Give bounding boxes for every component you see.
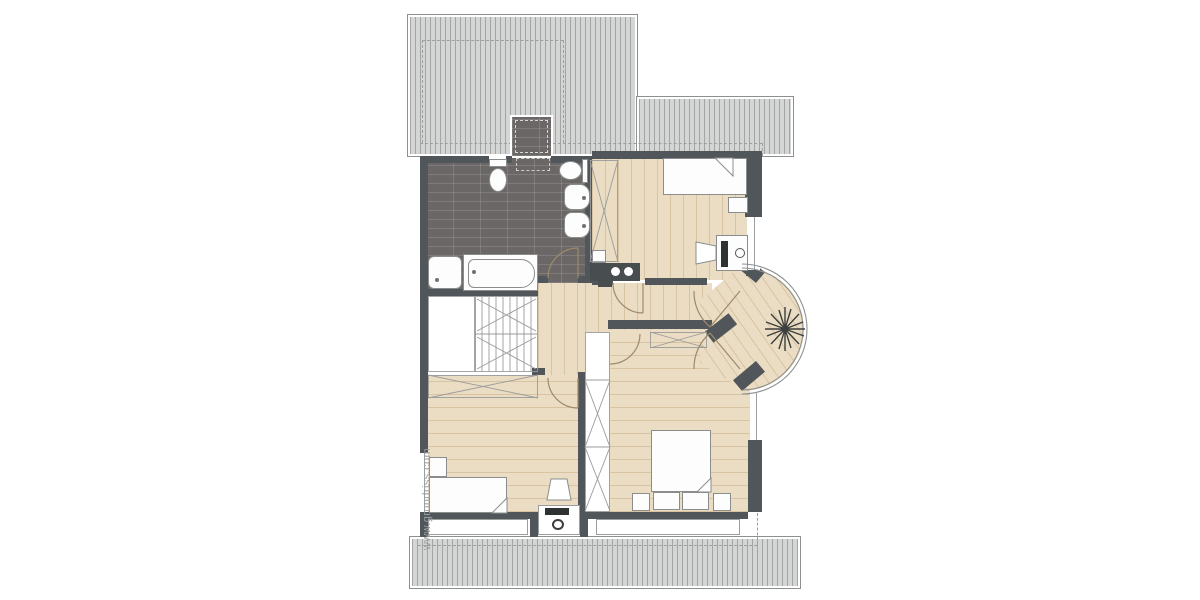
shower-dashed-zone (516, 158, 550, 171)
wall-outer-right-lower (748, 440, 762, 512)
mouse-icon (735, 248, 745, 258)
roof-dashed-line (418, 545, 757, 546)
roof-hatch-top-right (637, 97, 793, 156)
shower-drain-icon (435, 278, 439, 282)
wall-outer-bottom (588, 512, 748, 519)
desk-top-bedroom (716, 235, 748, 271)
bed-single-bottom-left (429, 477, 507, 513)
shower-tray (428, 256, 462, 289)
nightstand (713, 493, 731, 511)
counter-unit (590, 263, 640, 281)
sink (564, 184, 590, 210)
roof-dashed-line (553, 143, 762, 144)
bathtub-tap-icon (472, 270, 476, 274)
bathtub-inner (468, 259, 535, 288)
roof-dashed-line (422, 40, 423, 143)
counter-circle-icon (611, 267, 620, 276)
pc-monitor-icon (721, 241, 728, 267)
wall-bedroom-bottom (645, 278, 707, 285)
roof-dashed-line (563, 40, 564, 143)
knee-wall-right (596, 519, 740, 535)
toilet (489, 159, 507, 167)
wall-hall-room (608, 320, 712, 329)
roof-dashed-line (422, 40, 563, 41)
pillow (653, 492, 680, 510)
knee-wall-left (428, 519, 528, 535)
roof-dashed-line (757, 513, 758, 545)
bidet-bowl (559, 161, 582, 180)
wall-outer-bottom (420, 512, 532, 519)
pc-keyboard-icon (545, 508, 569, 515)
sink (564, 212, 590, 238)
counter-stub (598, 281, 612, 287)
bidet-tank (582, 159, 588, 183)
wall-closet-left (578, 372, 585, 512)
wall-outer-bottom (580, 512, 588, 537)
hallway-floor (538, 283, 585, 383)
sink-tap-icon (582, 224, 586, 228)
stool-icon (552, 519, 564, 530)
window-right-bottom (750, 393, 762, 440)
floor-plan-canvas: www.grundriss.com (0, 0, 1200, 600)
chimney-block (510, 115, 553, 158)
wall-bathroom-bottom (538, 276, 548, 283)
sink-tap-icon (582, 196, 586, 200)
stair-void (429, 297, 475, 372)
window-right-top (748, 217, 760, 270)
desk-niche (538, 505, 580, 535)
watermark-text: www.grundriss.com (421, 444, 435, 554)
stairs (475, 297, 538, 372)
roof-dashed-line (762, 143, 763, 156)
bed-double (651, 430, 711, 492)
bed-single-top (663, 158, 747, 195)
counter-circle-icon (624, 267, 633, 276)
closet-column (585, 333, 610, 512)
toilet-bowl (489, 168, 507, 192)
pillow (682, 492, 709, 510)
wall-outer-bottom (530, 512, 538, 537)
roof-dashed-line (420, 143, 512, 144)
nightstand (728, 197, 748, 213)
cabinet (592, 250, 606, 263)
wall-stub-stairs (532, 368, 545, 375)
nightstand (632, 493, 650, 511)
bathtub (463, 254, 538, 291)
